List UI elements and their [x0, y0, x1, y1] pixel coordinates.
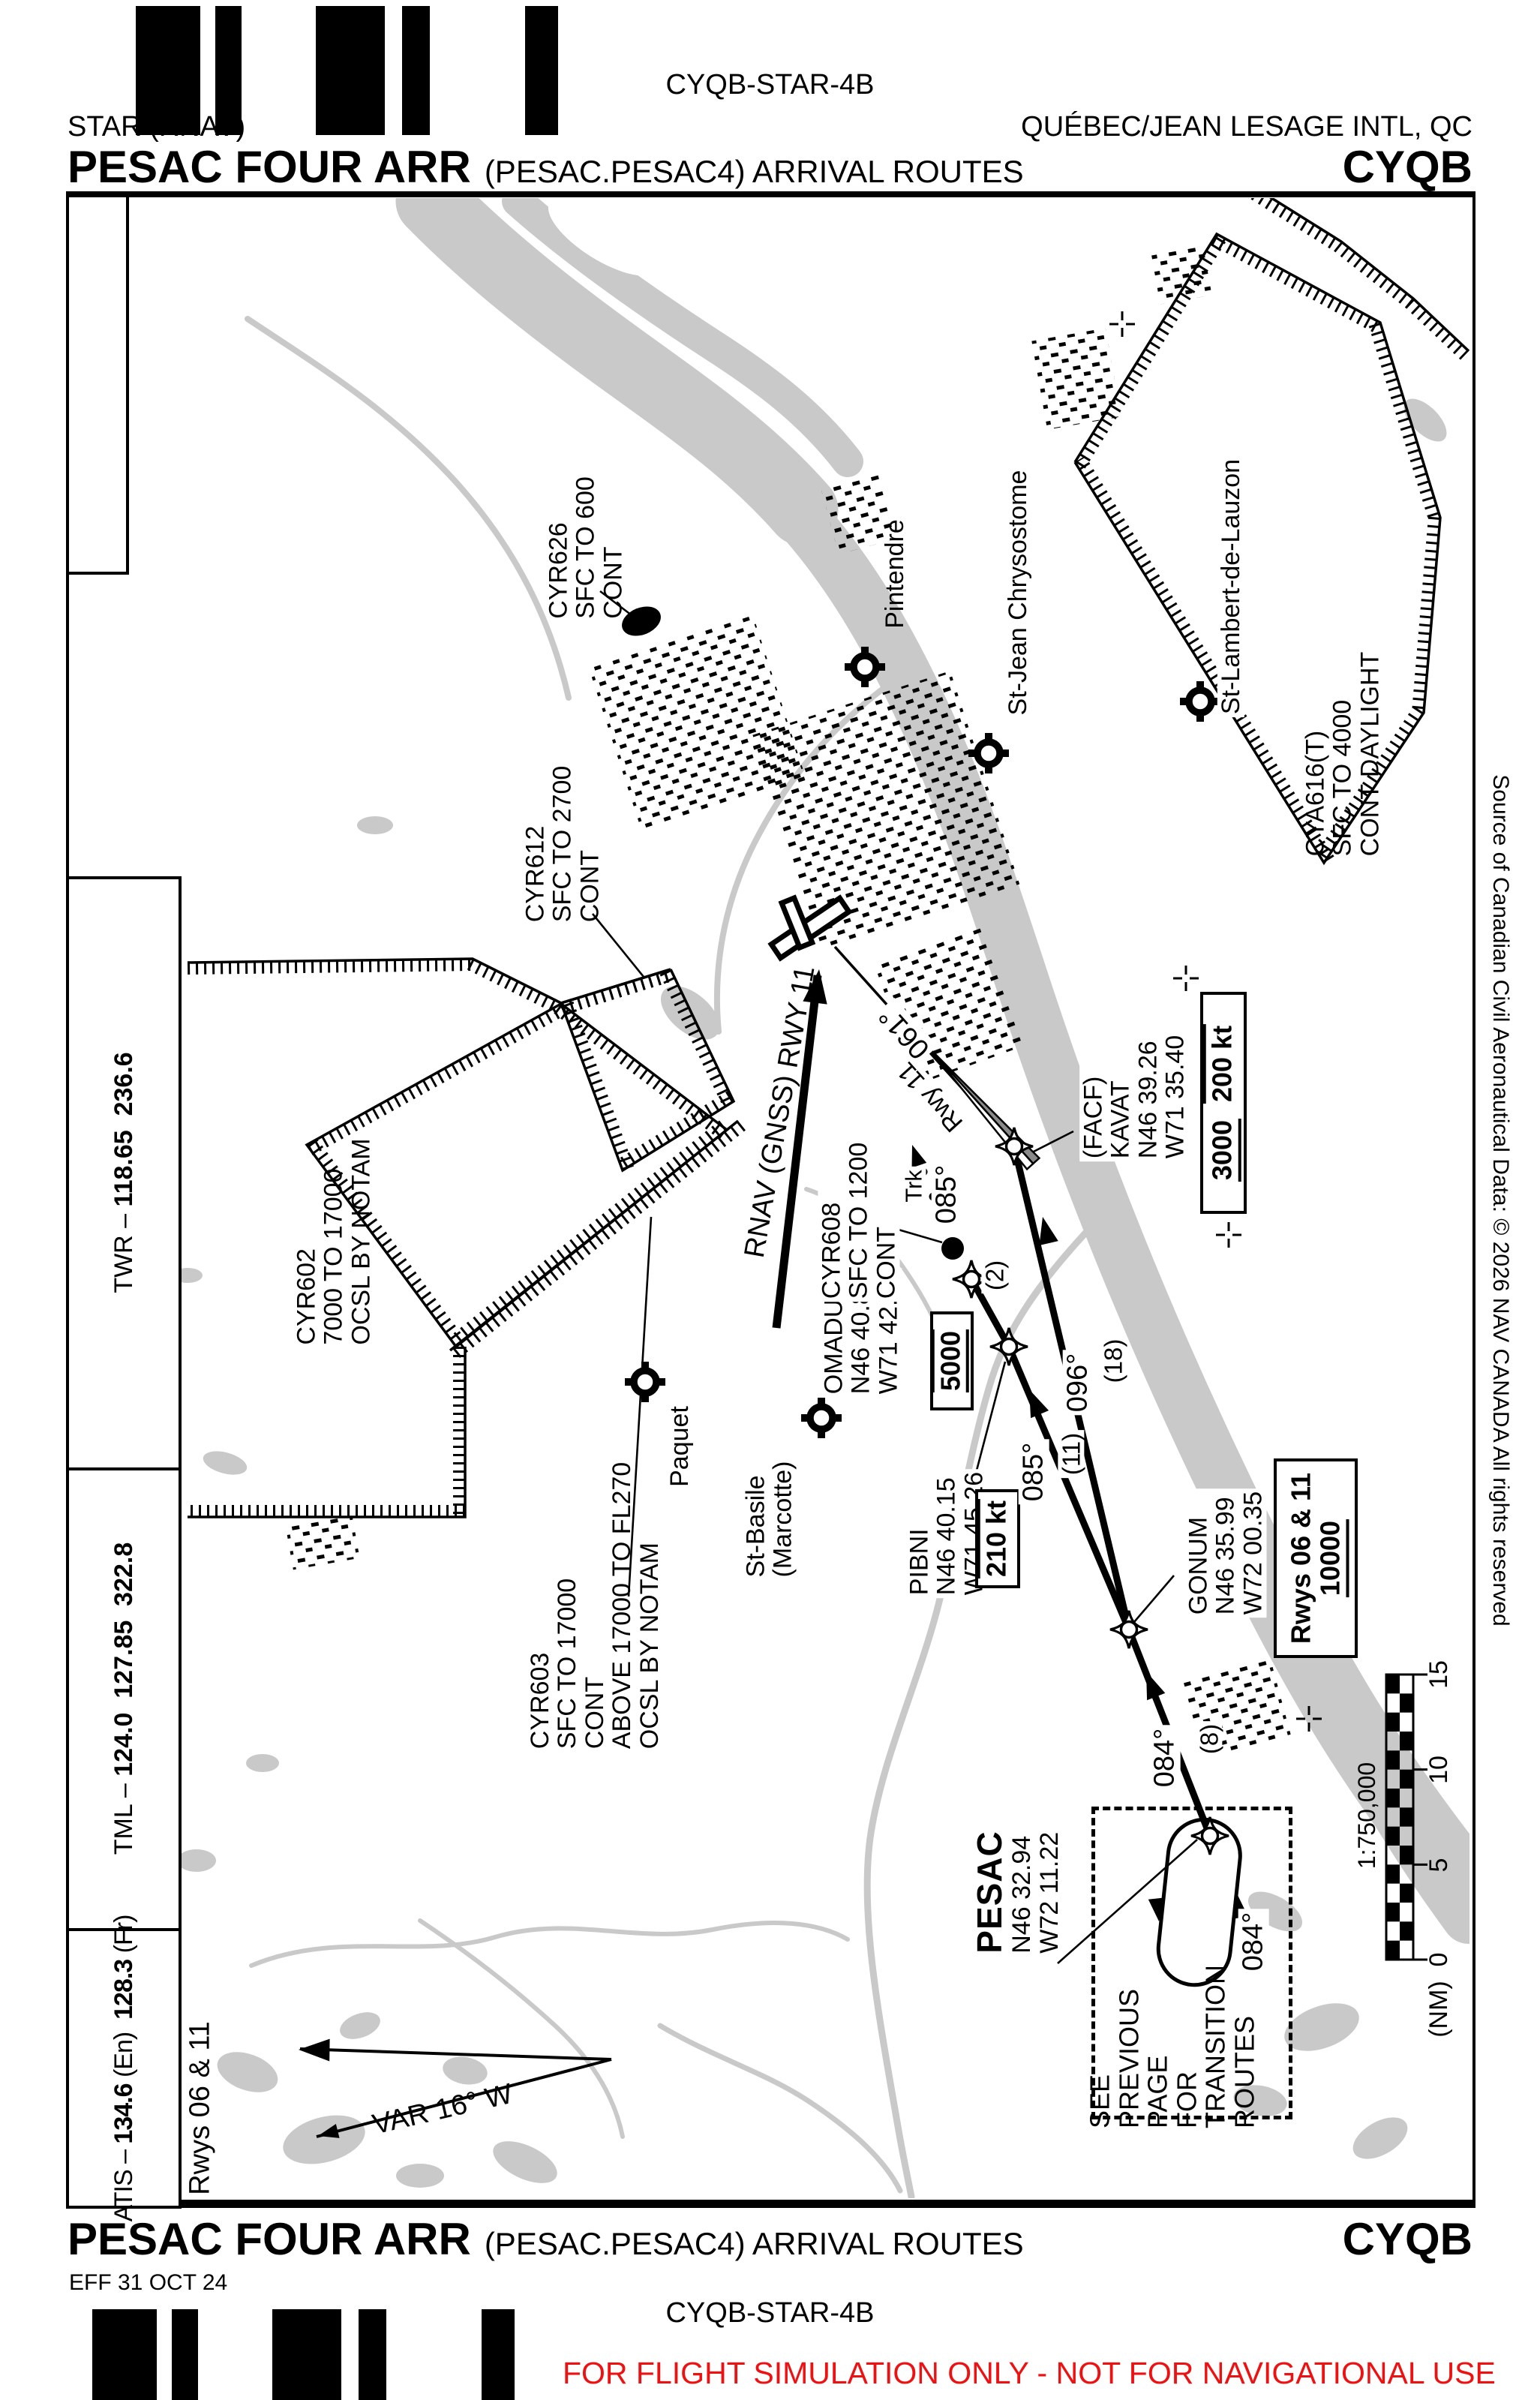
footer-title-row: PESAC FOUR ARR (PESAC.PESAC4) ARRIVAL RO… [68, 2213, 1024, 2265]
simulation-disclaimer: FOR FLIGHT SIMULATION ONLY - NOT FOR NAV… [563, 2356, 1493, 2391]
legend-empty-box [66, 194, 129, 575]
chart-code-bottom: CYQB-STAR-4B [0, 2297, 1540, 2329]
footer-procedure-subtitle: (PESAC.PESAC4) ARRIVAL ROUTES [485, 2226, 1024, 2262]
effective-date: EFF 31 OCT 24 [69, 2270, 227, 2296]
footer-procedure-title: PESAC FOUR ARR [68, 2213, 471, 2265]
star-chart-page: CYQB-STAR-4B STAR (RNAV) QUÉBEC/JEAN LES… [0, 0, 1540, 2400]
footer-airport-code: CYQB [1343, 2213, 1472, 2265]
